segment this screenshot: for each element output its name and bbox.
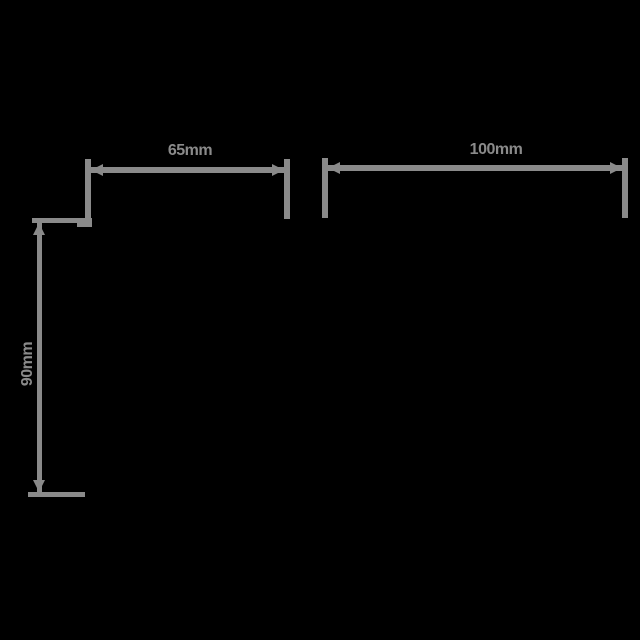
dimension-label: 65mm (168, 142, 212, 160)
arrowhead-up-icon (33, 223, 45, 235)
dimension-line (91, 167, 284, 173)
dimension-label: 100mm (470, 141, 523, 159)
extension-line (622, 158, 628, 218)
arrowhead-right-icon (610, 162, 622, 174)
technical-drawing-canvas: 65mm 100mm 90mm (0, 0, 640, 640)
arrowhead-left-icon (328, 162, 340, 174)
extension-line (284, 159, 290, 219)
dimension-line (37, 223, 42, 492)
dimension-line (328, 165, 622, 171)
arrowhead-down-icon (33, 480, 45, 492)
extension-line (28, 492, 85, 497)
arrowhead-right-icon (272, 164, 284, 176)
dimension-label: 90mm (19, 342, 37, 386)
arrowhead-left-icon (91, 164, 103, 176)
outline-step (77, 223, 92, 227)
